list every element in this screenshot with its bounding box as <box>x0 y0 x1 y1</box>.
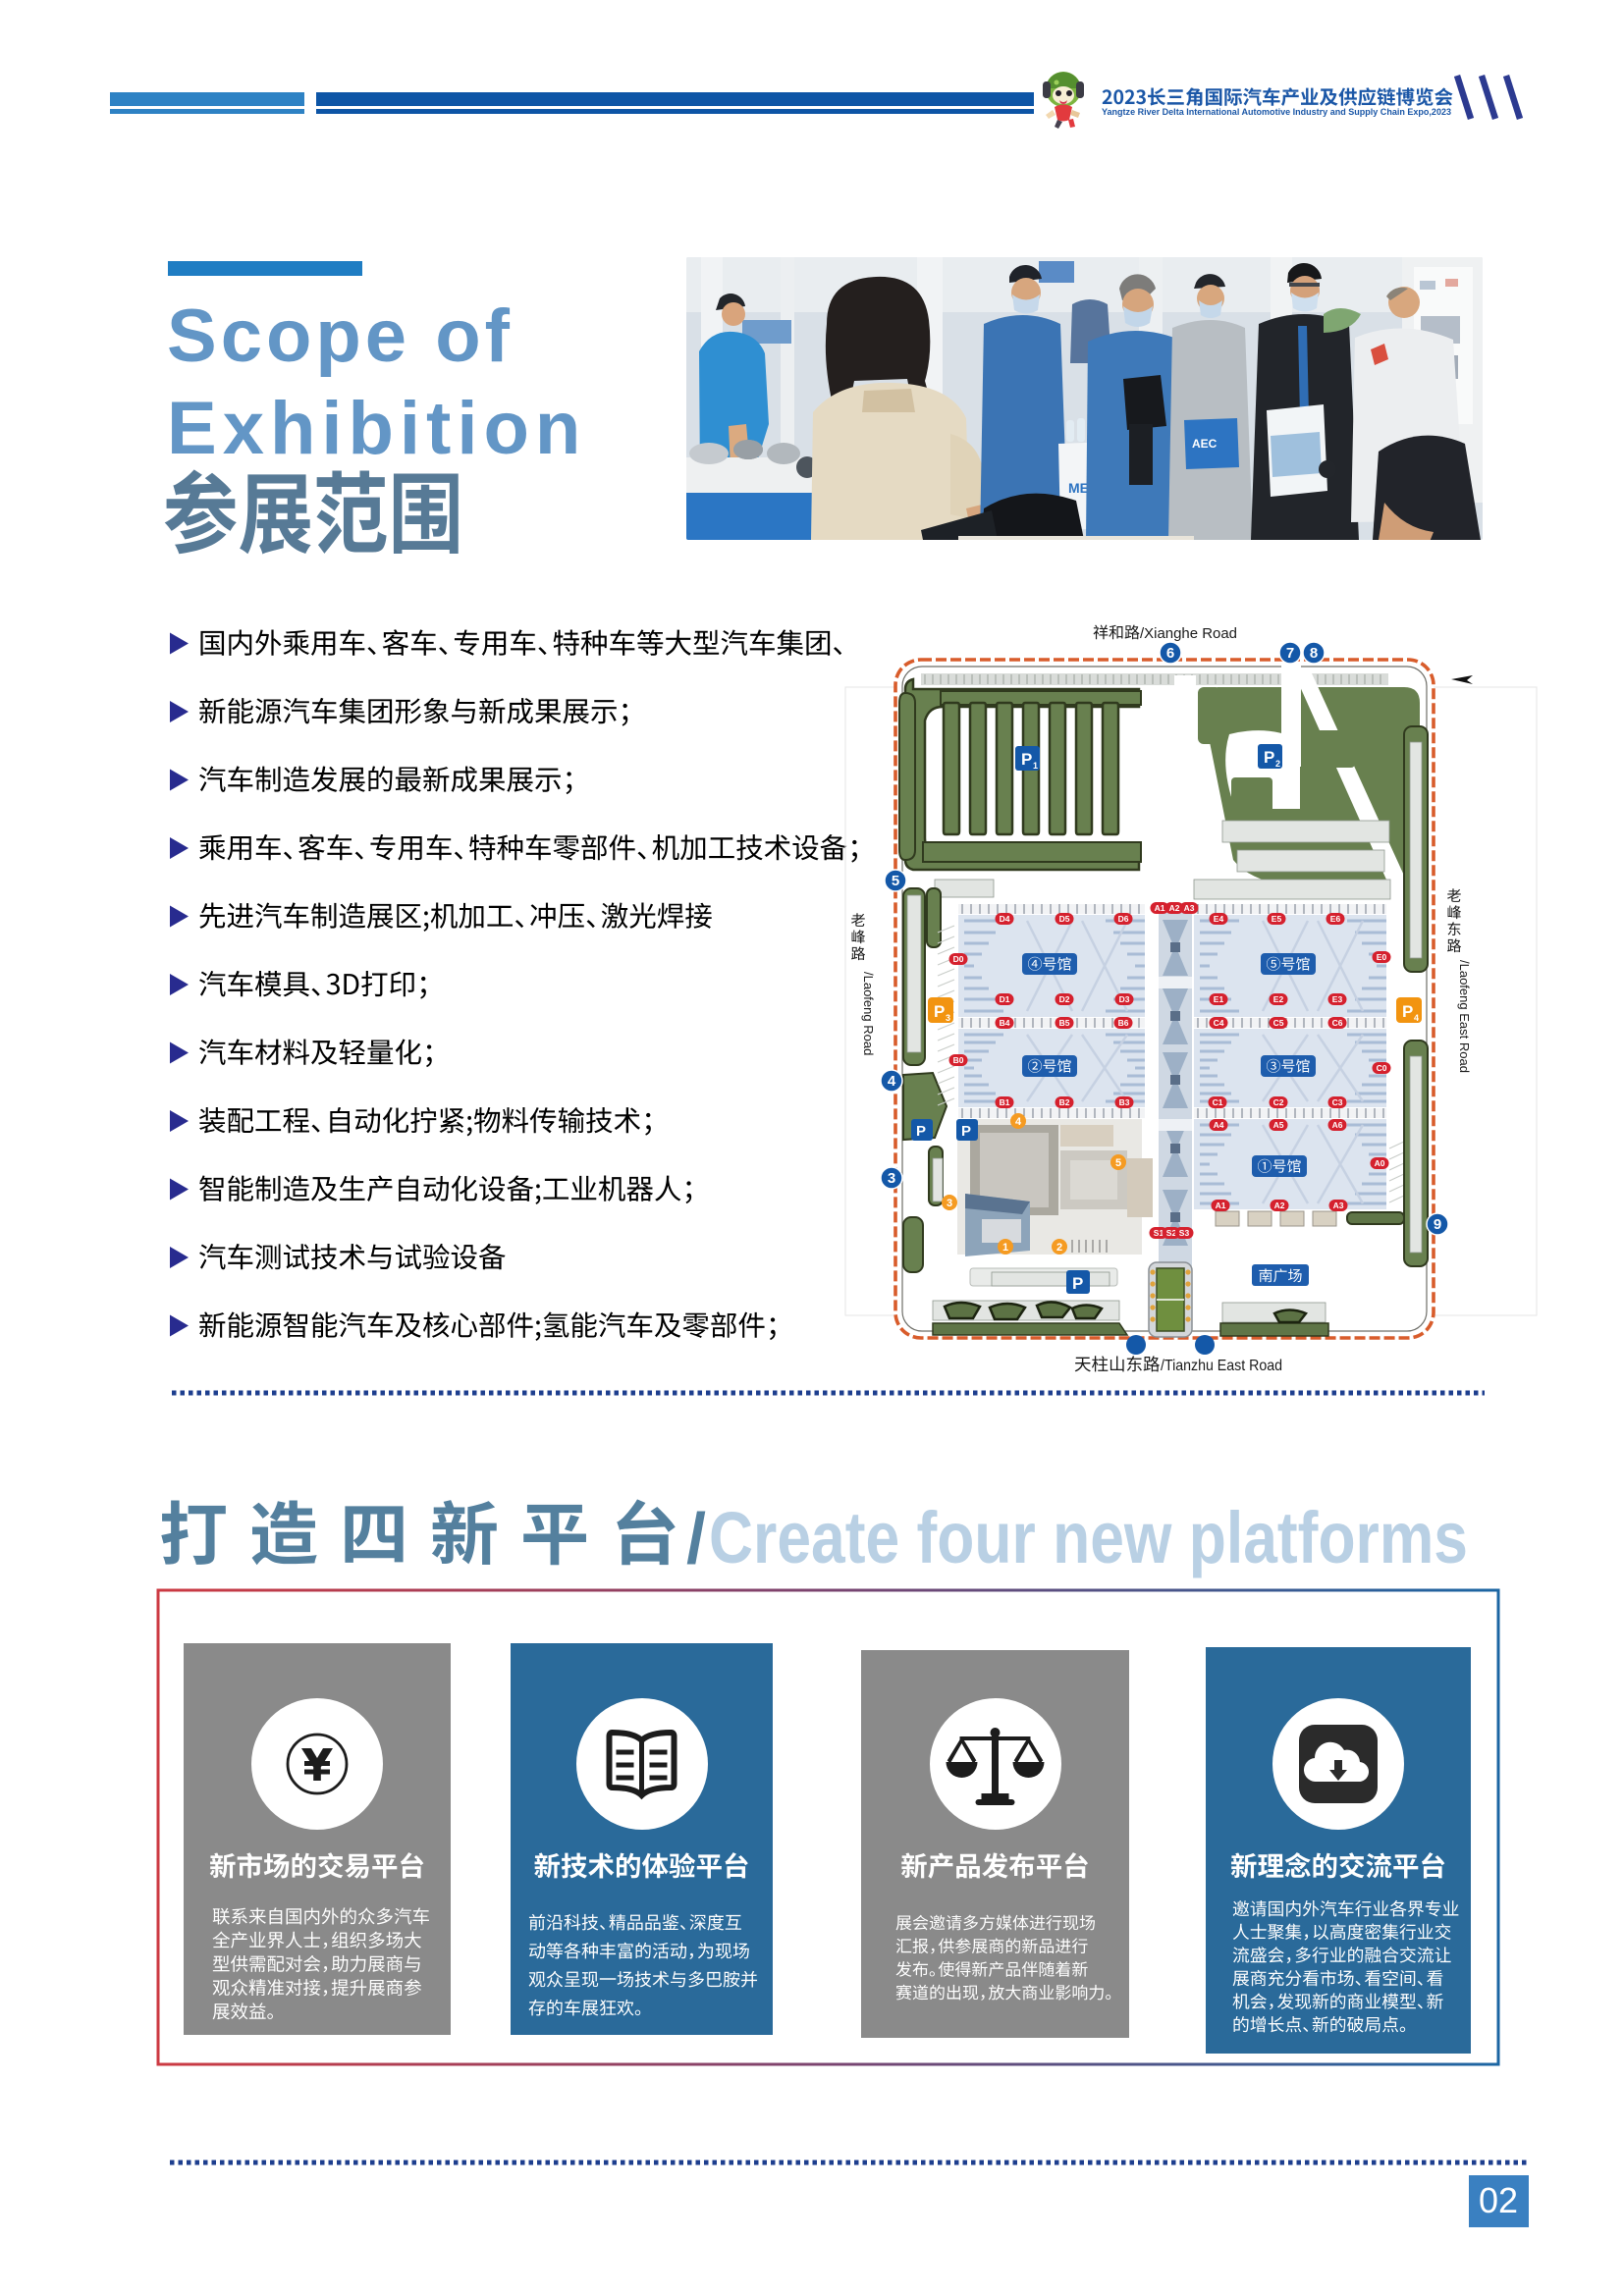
svg-text:A2: A2 <box>1169 903 1180 913</box>
svg-text:8: 8 <box>1310 645 1318 662</box>
svg-text:A3: A3 <box>1184 903 1195 913</box>
svg-text:E2: E2 <box>1273 994 1284 1004</box>
svg-text:P: P <box>934 1002 945 1021</box>
svg-text:P: P <box>1264 748 1274 767</box>
svg-text:9: 9 <box>1434 1216 1441 1233</box>
svg-text:A1: A1 <box>1216 1201 1226 1210</box>
svg-text:AEC: AEC <box>1192 437 1218 451</box>
svg-text:6: 6 <box>1166 645 1174 662</box>
svg-text:D0: D0 <box>953 954 964 964</box>
svg-text:P: P <box>916 1123 926 1140</box>
svg-text:A2: A2 <box>1274 1201 1285 1210</box>
svg-text:S3: S3 <box>1179 1228 1190 1238</box>
svg-text:D4: D4 <box>1000 914 1010 924</box>
svg-text:D2: D2 <box>1059 994 1070 1004</box>
svg-text:A5: A5 <box>1273 1120 1284 1130</box>
svg-text:A1: A1 <box>1155 903 1165 913</box>
svg-text:02: 02 <box>1479 2180 1518 2220</box>
svg-text:B3: B3 <box>1119 1097 1130 1107</box>
svg-text:Scope of: Scope of <box>167 294 514 378</box>
svg-text:E4: E4 <box>1214 914 1224 924</box>
svg-text:Yangtze River Delta Internatio: Yangtze River Delta International Automo… <box>1102 107 1451 117</box>
svg-text:A6: A6 <box>1332 1120 1343 1130</box>
svg-text:C1: C1 <box>1213 1097 1223 1107</box>
svg-text:C6: C6 <box>1332 1018 1343 1028</box>
svg-text:A0: A0 <box>1375 1158 1385 1168</box>
svg-text:1: 1 <box>1002 1242 1008 1254</box>
svg-text:D6: D6 <box>1118 914 1129 924</box>
svg-text:E3: E3 <box>1332 994 1343 1004</box>
svg-text:4: 4 <box>888 1073 896 1090</box>
svg-text:C4: C4 <box>1214 1018 1224 1028</box>
svg-text:B5: B5 <box>1059 1018 1070 1028</box>
svg-text:3: 3 <box>946 1013 950 1023</box>
svg-text:B1: B1 <box>1000 1097 1010 1107</box>
svg-text:4: 4 <box>1414 1013 1419 1023</box>
svg-text:5: 5 <box>1115 1157 1121 1169</box>
svg-text:2: 2 <box>1056 1242 1062 1254</box>
svg-text:Exhibition: Exhibition <box>167 387 586 470</box>
svg-text:D1: D1 <box>1000 994 1010 1004</box>
svg-text:B6: B6 <box>1118 1018 1129 1028</box>
svg-text:Create four new platforms: Create four new platforms <box>709 1497 1468 1578</box>
svg-text:5: 5 <box>892 873 899 889</box>
svg-text:3: 3 <box>947 1198 952 1209</box>
svg-text:P: P <box>961 1123 971 1140</box>
svg-text:B4: B4 <box>1000 1018 1010 1028</box>
svg-text:E6: E6 <box>1330 914 1341 924</box>
svg-text:7: 7 <box>1286 645 1294 662</box>
svg-text:4: 4 <box>1015 1116 1022 1128</box>
svg-text:/Laofeng Road: /Laofeng Road <box>861 972 876 1055</box>
svg-text:P: P <box>1072 1274 1083 1293</box>
svg-text:/Laofeng East Road: /Laofeng East Road <box>1457 960 1472 1073</box>
svg-text:P: P <box>1402 1002 1413 1021</box>
svg-text:E5: E5 <box>1272 914 1282 924</box>
svg-text:D3: D3 <box>1119 994 1130 1004</box>
svg-text:A4: A4 <box>1214 1120 1224 1130</box>
svg-text:D5: D5 <box>1059 914 1070 924</box>
svg-text:C0: C0 <box>1377 1063 1387 1073</box>
svg-text:C5: C5 <box>1273 1018 1284 1028</box>
svg-text:2: 2 <box>1275 759 1280 769</box>
svg-text:E0: E0 <box>1377 952 1387 962</box>
svg-text:B0: B0 <box>953 1055 964 1065</box>
svg-text:3: 3 <box>888 1170 895 1187</box>
svg-text:A3: A3 <box>1333 1201 1344 1210</box>
svg-text:/Xianghe Road: /Xianghe Road <box>1140 626 1237 642</box>
svg-text:P: P <box>1021 750 1032 769</box>
svg-text:C3: C3 <box>1332 1097 1343 1107</box>
svg-text:/: / <box>686 1500 706 1578</box>
svg-text:/Tianzhu East Road: /Tianzhu East Road <box>1161 1358 1282 1374</box>
svg-text:B2: B2 <box>1059 1097 1070 1107</box>
svg-text:C2: C2 <box>1273 1097 1284 1107</box>
svg-text:1: 1 <box>1033 761 1038 771</box>
svg-text:E1: E1 <box>1214 994 1224 1004</box>
